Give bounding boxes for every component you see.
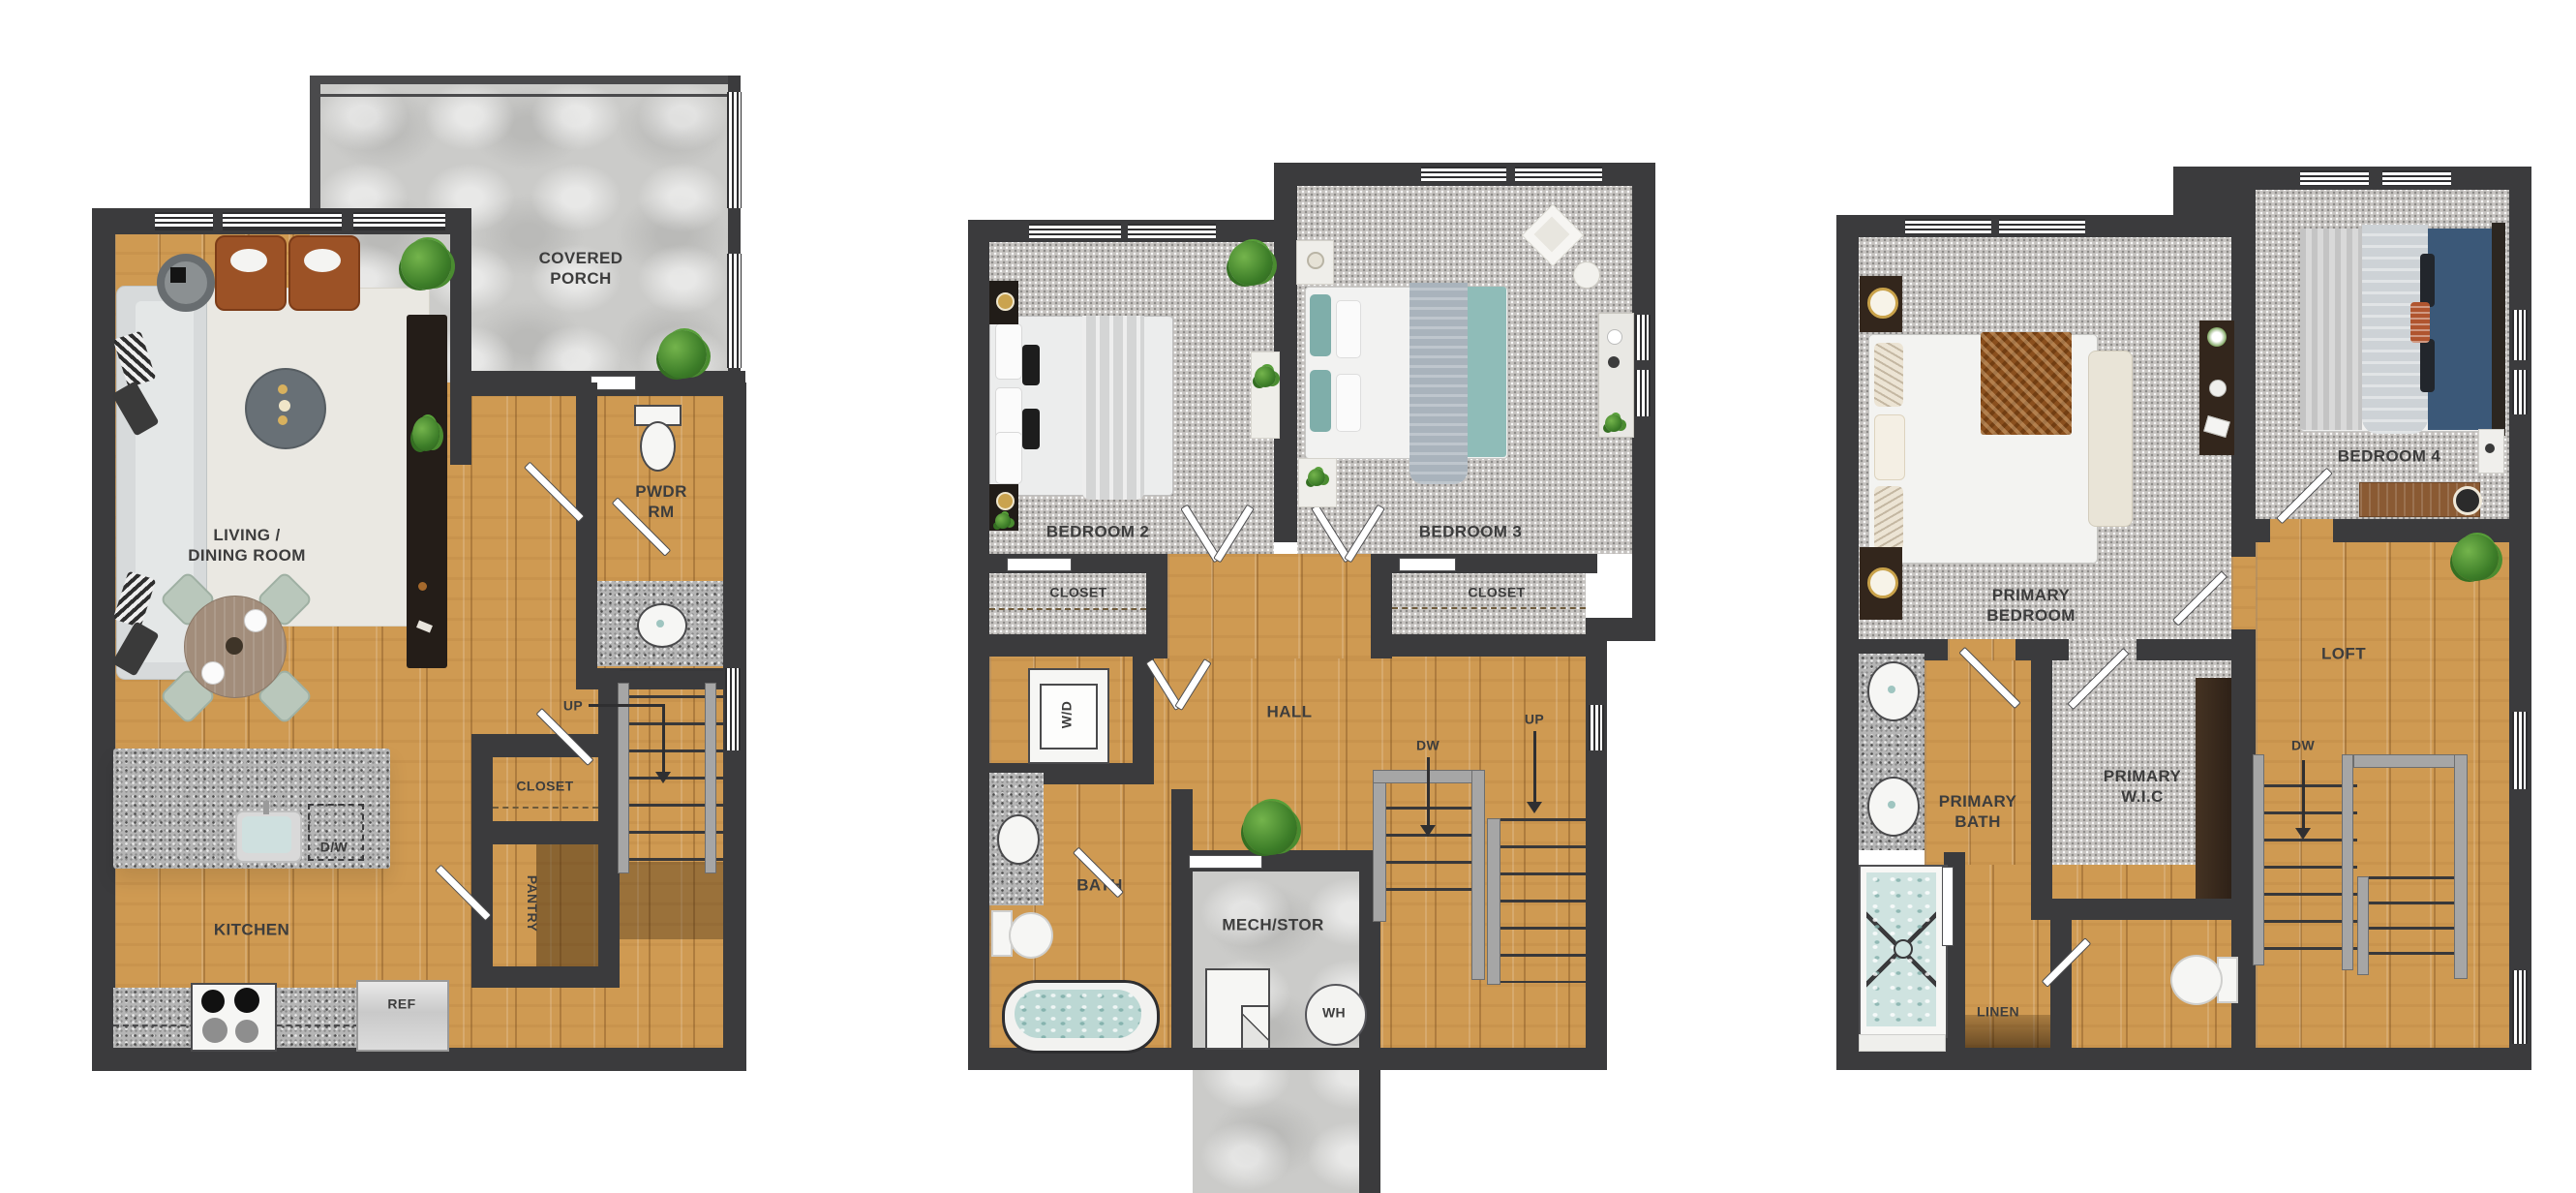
primary-sink-1-drain (1888, 686, 1895, 693)
closet2-shelf-line (989, 608, 1146, 610)
dining-centerpiece (226, 637, 243, 655)
stairs-lower-flight (2369, 876, 2454, 973)
pwdr-left-wall (576, 382, 597, 668)
right-wall (2509, 167, 2531, 1070)
closet3-label: CLOSET (1468, 584, 1525, 601)
stair-rail-mid-1 (1471, 770, 1485, 980)
primary-bed-bench (2088, 351, 2133, 527)
loft-plant (2452, 535, 2499, 581)
bed2-accent-pillow-1 (1022, 345, 1040, 385)
furnace-panel (1241, 1005, 1270, 1050)
burner-4 (235, 1020, 258, 1043)
stairs-understair-shade (620, 862, 723, 939)
up-arrow-head (1527, 802, 1542, 813)
b4-bottom-stub (2256, 519, 2270, 542)
bed4-headboard (2492, 223, 2505, 436)
closet3-bottom-wall (1392, 634, 1597, 657)
porch-window-lower (727, 254, 742, 368)
island-faucet (263, 801, 269, 814)
plant-stand-plant (1255, 366, 1276, 387)
closet2-carpet (989, 573, 1146, 634)
bedroom2-label: BEDROOM 2 (1046, 521, 1150, 541)
primary-bed-throw (1981, 332, 2072, 435)
toilet-bowl (2170, 955, 2223, 1005)
shower-base (1859, 1034, 1946, 1052)
loft-label: LOFT (2321, 643, 2366, 663)
closet3-shelf-line (1392, 607, 1586, 609)
dresser3-plant (1605, 414, 1622, 432)
loft-side-window (2512, 712, 2528, 789)
left-wall (92, 208, 115, 1070)
bath-wic-wall (2031, 639, 2052, 920)
up-arrow-vline (662, 704, 665, 772)
closet-top-wall (471, 734, 620, 757)
primary-nightstand-bottom-mirror (1867, 567, 1898, 598)
bed2-pillow-1 (995, 323, 1022, 380)
up-arrow-line (1533, 731, 1536, 802)
bedroom2-plant (1228, 241, 1273, 286)
armchair-1-pillow (230, 249, 267, 272)
bed3-gray-throw (1409, 283, 1468, 484)
nightstand3-plant (1308, 469, 1325, 486)
stair-rail-left (2253, 754, 2264, 965)
bed3-pillow-white-1 (1336, 300, 1361, 358)
stair-rail-mid-2 (2357, 876, 2369, 975)
stair-rail-left (1373, 770, 1386, 922)
dresser-mirror (2453, 486, 2482, 515)
console-speaker (2209, 380, 2227, 397)
porch-window-upper (727, 92, 742, 208)
nightstand3-top-lamp (1307, 252, 1324, 269)
kitchen-label: KITCHEN (214, 919, 289, 939)
refrigerator (356, 980, 449, 1052)
dw-arrow-line (1427, 757, 1430, 825)
stair-rail-mid-1 (2342, 754, 2353, 970)
linen-label: LINEN (1977, 1003, 2019, 1021)
bedroom2-plant-stand (1251, 352, 1280, 439)
mech-door (1189, 855, 1262, 869)
stair-rail-right (2454, 754, 2468, 979)
b3-window-1 (1421, 167, 1506, 182)
burner-2 (234, 988, 259, 1013)
coffee-table-tray-1 (278, 384, 288, 394)
living-dining-label: LIVING / DINING ROOM (188, 525, 306, 566)
bath-door-gap (1948, 639, 2015, 660)
divider-door-gap (2231, 557, 2256, 629)
b4-side-window-1 (2512, 310, 2528, 360)
up-arrow-head (655, 772, 671, 783)
dresser3-item-2 (1608, 356, 1620, 368)
pantry-label: PANTRY (523, 875, 540, 932)
dresser3-item-1 (1607, 329, 1622, 345)
shower-door (1942, 867, 1954, 946)
primary-pillow-2 (1874, 414, 1905, 480)
pwdr-label: PWDR RM (635, 481, 687, 523)
island-sink-basin (242, 816, 291, 853)
console-flowers (2207, 327, 2227, 347)
bed4-striped-duvet (2300, 229, 2362, 430)
dishwasher-label: D/W (320, 839, 348, 856)
living-window-3 (353, 212, 445, 230)
mech-label: MECH/STOR (1222, 914, 1323, 934)
bedroom4-nightstand-dot (2485, 444, 2495, 453)
closet2-label: CLOSET (1049, 584, 1106, 601)
primary-bath-label: PRIMARY BATH (1939, 791, 2017, 833)
up-label: UP (563, 697, 583, 715)
bath-wood-floor (1924, 660, 2031, 865)
neck-left-pier (1146, 554, 1167, 658)
bathtub-water (1015, 990, 1141, 1038)
armchair-2 (288, 235, 360, 311)
second-floor-plan: CLOSET CLOSET BEDROOM 2 BEDROOM 3 W/D HA… (958, 145, 1665, 1080)
closet3-door (1399, 558, 1456, 571)
pantry-shelving (536, 844, 598, 966)
closet2-door (1007, 558, 1072, 571)
lamp (170, 267, 186, 283)
bath-toilet-bowl (1009, 912, 1053, 959)
pwdr-toilet-bowl (640, 421, 676, 472)
bedroom3-label: BEDROOM 3 (1419, 521, 1523, 541)
lamp-side-table (157, 254, 215, 312)
bed2-duvet-drape (1082, 316, 1144, 500)
nightstand2-plant (995, 513, 1011, 529)
closet-pantry-wall (471, 821, 620, 844)
porch-plant (658, 330, 707, 379)
primary-window-2 (1999, 219, 2085, 234)
coffee-table-tray-3 (278, 415, 288, 425)
wd-label: W/D (1058, 701, 1076, 728)
porch-top-rail (310, 94, 741, 97)
porch-top-wall (310, 76, 741, 84)
wic-door-gap (2069, 639, 2137, 660)
bed3-pillow-white-2 (1336, 374, 1361, 432)
bath-right-wall (1171, 789, 1193, 1048)
primary-pillow-3 (1874, 486, 1903, 550)
covered-porch-label: COVERED PORCH (539, 248, 623, 290)
b2-window-1 (1029, 224, 1121, 239)
hall-plant (1243, 801, 1297, 855)
bed4-pillow-2 (2420, 339, 2435, 392)
linen-right-wall (2050, 920, 2072, 1048)
wd-right-wall (1133, 657, 1154, 775)
left-wall (968, 220, 989, 1070)
bedroom4-label: BEDROOM 4 (2338, 445, 2441, 466)
primary-window-1 (1905, 219, 1991, 234)
closet-label: CLOSET (516, 778, 573, 795)
shower-drain (1894, 939, 1913, 959)
living-window-1 (155, 212, 213, 230)
closet3-carpet (1392, 573, 1586, 634)
stairs-rail-left (618, 683, 629, 873)
closet-shelf-line (493, 807, 598, 809)
dw-arrow-line (2302, 760, 2305, 828)
wic-bottom-wall (2052, 899, 2256, 920)
console-plant (412, 416, 439, 451)
stair-rail-mid-2 (1487, 818, 1500, 985)
hall-label: HALL (1267, 701, 1313, 721)
living-window-2 (223, 212, 342, 230)
bed2-accent-pillow-2 (1022, 409, 1040, 449)
dw-arrow-head (2295, 828, 2311, 840)
stairs-up-flight (1499, 818, 1586, 983)
wh-label: WH (1322, 1004, 1346, 1022)
b4-side-window-2 (2512, 370, 2528, 414)
stair-side-window (2512, 970, 2528, 1044)
burner-1 (201, 990, 225, 1013)
stairs-rail-right (705, 683, 716, 873)
bed4-pillow-1 (2420, 254, 2435, 307)
bed3-pillow-teal-2 (1310, 370, 1331, 432)
stair-window (725, 668, 741, 750)
wic-label: PRIMARY W.I.C (2104, 766, 2182, 808)
pwdr-sink-drain (656, 620, 664, 627)
bedroom4-top-wall (2231, 167, 2531, 190)
stair-rail-top (2353, 754, 2458, 768)
first-floor-plan: COVERED PORCH PWDR RM CLOSET PANTRY UP (58, 44, 755, 1085)
armchair-1 (215, 235, 287, 311)
bed2-pillow-3 (995, 432, 1022, 484)
third-floor-plan: PRIMARY BEDROOM BEDROOM 4 LOFT PRIMARY B… (1830, 145, 2546, 1080)
b3-side-window-1 (1635, 315, 1651, 360)
closet-left-wall (471, 734, 493, 988)
refrigerator-label: REF (387, 995, 415, 1013)
bed4-accent-pillow (2410, 302, 2430, 343)
b4-window-1 (2300, 170, 2369, 186)
bed4-navy-comforter (2428, 229, 2498, 430)
up-arrow-hline (589, 704, 664, 707)
stair-side-window (1589, 705, 1604, 750)
area-rug (198, 288, 430, 627)
dw-label: DW (2291, 737, 2315, 754)
living-right-wall (450, 234, 471, 465)
b3-window-2 (1515, 167, 1602, 182)
dw-label: DW (1416, 737, 1440, 754)
primary-pillow-1 (1874, 343, 1903, 407)
lower-right-wall (1586, 639, 1607, 1070)
coffee-table-tray-2 (279, 400, 290, 412)
wic-wardrobe (2196, 678, 2231, 899)
b4-window-2 (2382, 170, 2451, 186)
side-table3 (1573, 261, 1600, 289)
bed3-pillow-teal-1 (1310, 294, 1331, 356)
primary-nightstand-top-mirror (1867, 288, 1898, 319)
nightstand2-bottom-lamp (996, 492, 1015, 510)
pantry-bottom-wall (471, 966, 620, 988)
living-plant (401, 239, 451, 290)
dining-plate-1 (244, 609, 267, 632)
porch-entry-door (591, 376, 636, 390)
armchair-2-pillow (304, 249, 341, 272)
burner-3 (202, 1018, 227, 1043)
b3-side-window-2 (1635, 370, 1651, 416)
b2-window-2 (1128, 224, 1216, 239)
porch-left-wall (310, 76, 320, 211)
dw-arrow-head (1420, 825, 1436, 837)
console-bottle (418, 582, 427, 591)
primary-sink-2-drain (1888, 801, 1895, 809)
dining-plate-2 (201, 661, 225, 685)
up-label: UP (1525, 711, 1544, 728)
bath-sink (997, 814, 1040, 865)
hall-neck-wood (1167, 554, 1371, 658)
nightstand2-top-lamp (996, 292, 1015, 311)
neck-right-pier (1371, 554, 1392, 658)
primary-bedroom-label: PRIMARY BEDROOM (1986, 585, 2076, 627)
media-console (407, 315, 447, 668)
closet2-bottom-wall (989, 634, 1146, 657)
